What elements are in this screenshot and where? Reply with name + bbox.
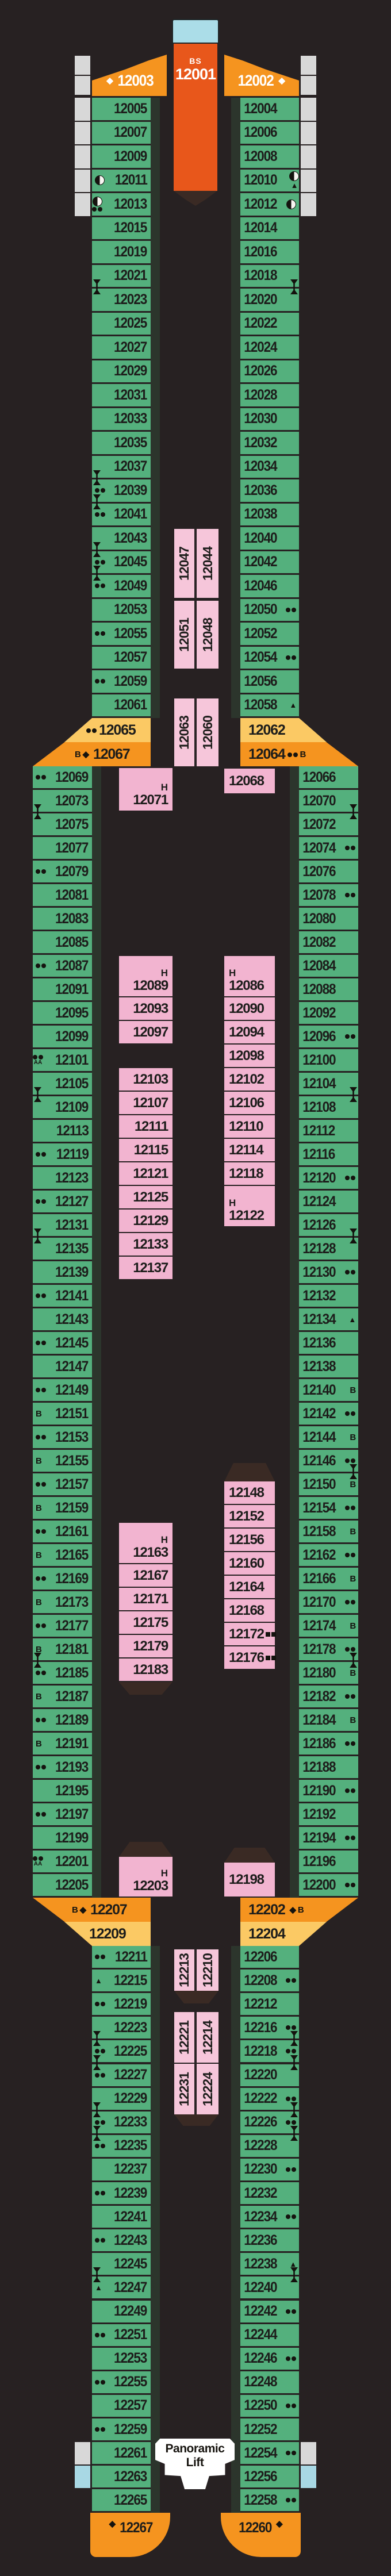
cabin-12124[interactable]: 12124 <box>299 1191 358 1212</box>
cabin-number: 12110 <box>229 1119 263 1135</box>
cabin-12231[interactable]: 12231 <box>174 2064 195 2114</box>
cabin-12144[interactable]: 12144B <box>299 1426 358 1448</box>
cabin-12079[interactable]: 12079 <box>33 861 92 882</box>
cabin-12211[interactable]: 12211 <box>92 1946 151 1968</box>
cabin-12100[interactable]: 12100 <box>299 1049 358 1071</box>
cabin-12081[interactable]: 12081 <box>33 884 92 906</box>
cabin-number: 12181 <box>56 1641 92 1658</box>
cabin-number: 12141 <box>56 1288 92 1304</box>
cabin-12069[interactable]: 12069 <box>33 766 92 788</box>
cabin-number: 12052 <box>240 625 277 642</box>
cabin-12046[interactable]: 12046 <box>240 575 299 597</box>
cabin-12060[interactable]: 12060 <box>197 698 218 766</box>
cabin-12212[interactable]: 12212 <box>240 1993 299 2015</box>
cabin-12145[interactable]: 12145 <box>33 1332 92 1354</box>
cabin-number: 12048 <box>200 618 216 652</box>
cabin-12267[interactable]: ◆12267 <box>90 2513 170 2557</box>
cabin-12248[interactable]: 12248 <box>240 2371 299 2393</box>
cabin-12007[interactable]: 12007 <box>92 122 151 144</box>
cabin-12176[interactable]: 12176 <box>224 1646 275 1669</box>
cabin-12232[interactable]: 12232 <box>240 2182 299 2204</box>
twin-dots-icon <box>286 2167 296 2172</box>
cabin-12152[interactable]: 12152 <box>224 1505 275 1527</box>
cabin-number: 12010 <box>240 172 277 189</box>
cabin-12142[interactable]: 12142 <box>299 1403 358 1425</box>
cabin-12163[interactable]: H12163 <box>119 1523 172 1563</box>
cabin-12082[interactable]: 12082 <box>299 931 358 953</box>
cabin-12001[interactable]: BS12001 <box>174 44 217 191</box>
cabin-number: 12214 <box>200 2021 216 2055</box>
cabin-12224[interactable]: 12224 <box>197 2064 218 2114</box>
cabin-12223[interactable]: 12223 <box>92 2017 151 2038</box>
cabin-12172[interactable]: 12172 <box>224 1623 275 1645</box>
cabin-number: 12220 <box>240 2067 277 2083</box>
cabin-12074[interactable]: 12074 <box>299 837 358 859</box>
cabin-number: 12237 <box>114 2161 151 2178</box>
cabin-12190[interactable]: 12190 <box>299 1780 358 1802</box>
cabin-12048[interactable]: 12048 <box>197 601 218 669</box>
cabin-12241[interactable]: 12241 <box>92 2206 151 2228</box>
diamond-icon: ◆ <box>290 1906 296 1914</box>
cabin-12054[interactable]: 12054 <box>240 647 299 669</box>
cabin-number: 12062 <box>248 722 285 739</box>
cabin-number: 12065 <box>99 722 136 739</box>
cabin-12088[interactable]: 12088 <box>299 978 358 1000</box>
cabin-12160[interactable]: 12160 <box>224 1552 275 1575</box>
cabin-12173[interactable]: B12173 <box>33 1591 92 1613</box>
cabin-number: 12179 <box>133 1638 168 1654</box>
cabin-12093[interactable]: 12093 <box>119 997 172 1020</box>
cabin-12061[interactable]: 12061 <box>92 694 151 717</box>
cabin-12106[interactable]: 12106 <box>224 1092 275 1114</box>
cabin-12197[interactable]: 12197 <box>33 1803 92 1825</box>
cabin-12136[interactable]: 12136 <box>299 1332 358 1354</box>
cabin-number: 12031 <box>114 387 151 404</box>
cabin-12181[interactable]: B12181 <box>33 1638 92 1660</box>
cabin-12025[interactable]: 12025 <box>92 313 151 335</box>
cabin-12159[interactable]: B12159 <box>33 1497 92 1519</box>
cabin-12009[interactable]: 12009 <box>92 145 151 168</box>
cabin-number: 12055 <box>114 625 151 642</box>
cabin-12230[interactable]: 12230 <box>240 2159 299 2180</box>
cabin-12132[interactable]: 12132 <box>299 1285 358 1307</box>
cabin-12225[interactable]: 12225 <box>92 2040 151 2062</box>
panoramic-lift: PanoramicLift <box>155 2439 235 2489</box>
cabin-number: 12038 <box>240 506 277 523</box>
twin-dots-icon <box>95 2191 105 2195</box>
cabin-12235[interactable]: 12235 <box>92 2135 151 2157</box>
cabin-12097[interactable]: 12097 <box>119 1021 172 1043</box>
hull-shape <box>174 191 217 206</box>
cabin-12129[interactable]: 12129 <box>119 1210 172 1232</box>
twin-dots-icon <box>345 1600 355 1604</box>
cabin-12183[interactable]: 12183 <box>119 1659 172 1681</box>
cabin-12080[interactable]: 12080 <box>299 908 358 930</box>
cabin-12114[interactable]: 12114 <box>224 1139 275 1161</box>
cabin-12265[interactable]: 12265 <box>92 2489 151 2511</box>
cabin-12015[interactable]: 12015 <box>92 217 151 240</box>
cabin-12003[interactable]: ◆12003 <box>92 53 167 96</box>
cabin-12123[interactable]: 12123 <box>33 1167 92 1189</box>
cabin-12055[interactable]: 12055 <box>92 623 151 645</box>
cabin-12040[interactable]: 12040 <box>240 527 299 550</box>
cabin-12185[interactable]: 12185 <box>33 1662 92 1684</box>
cabin-12043[interactable]: 12043 <box>92 527 151 550</box>
cabin-12083[interactable]: 12083 <box>33 908 92 930</box>
cabin-12192[interactable]: 12192 <box>299 1803 358 1825</box>
cabin-12184[interactable]: 12184B <box>299 1709 358 1731</box>
cabin-12056[interactable]: 12056 <box>240 670 299 693</box>
cabin-12134[interactable]: 12134▲ <box>299 1308 358 1330</box>
cabin-12107[interactable]: 12107 <box>119 1092 172 1114</box>
cabin-number: 12162 <box>299 1547 335 1564</box>
cabin-12187[interactable]: B12187 <box>33 1686 92 1707</box>
cabin-number: 12150 <box>299 1476 335 1493</box>
twin-dots-icon <box>95 2073 105 2078</box>
cabin-12191[interactable]: B12191 <box>33 1733 92 1755</box>
cabin-12138[interactable]: 12138 <box>299 1356 358 1377</box>
cabin-12036[interactable]: 12036 <box>240 479 299 502</box>
cabin-12158[interactable]: 12158B <box>299 1521 358 1542</box>
cabin-12155[interactable]: B12155 <box>33 1450 92 1472</box>
cabin-12259[interactable]: 12259 <box>92 2418 151 2440</box>
cabin-12053[interactable]: 12053 <box>92 599 151 621</box>
cabin-12057[interactable]: 12057 <box>92 647 151 669</box>
cabin-12140[interactable]: 12140B <box>299 1379 358 1401</box>
cabin-12032[interactable]: 12032 <box>240 432 299 454</box>
twin-dots-icon <box>345 1883 355 1887</box>
cabin-12258[interactable]: 12258 <box>240 2489 299 2511</box>
cabin-12034[interactable]: 12034 <box>240 456 299 478</box>
cabin-12118[interactable]: 12118 <box>224 1162 275 1185</box>
cabin-12156[interactable]: 12156 <box>224 1529 275 1551</box>
cabin-12130[interactable]: 12130 <box>299 1261 358 1283</box>
hull-shadow <box>151 1946 160 2513</box>
balcony-strip <box>301 2442 316 2464</box>
cabin-12198[interactable]: 12198 <box>224 1863 275 1897</box>
cabin-12251[interactable]: 12251 <box>92 2324 151 2346</box>
cabin-12247[interactable]: ▲12247 <box>92 2276 151 2298</box>
cabin-12199[interactable]: 12199 <box>33 1827 92 1849</box>
cabin-12044[interactable]: 12044 <box>197 529 218 598</box>
cabin-12102[interactable]: 12102 <box>224 1068 275 1091</box>
cabin-12013[interactable]: 12013 <box>92 193 151 216</box>
cabin-number: 12251 <box>114 2327 151 2343</box>
cabin-12137[interactable]: 12137 <box>119 1257 172 1279</box>
cabin-number: 12166 <box>299 1571 335 1587</box>
cabin-12005[interactable]: 12005 <box>92 98 151 120</box>
divider-icon <box>350 1087 357 1102</box>
cabin-12189[interactable]: 12189 <box>33 1709 92 1731</box>
cabin-12073[interactable]: 12073 <box>33 790 92 812</box>
cabin-12120[interactable]: 12120 <box>299 1167 358 1189</box>
cabin-12260[interactable]: 12260◆ <box>221 2513 301 2557</box>
cabin-12121[interactable]: 12121 <box>119 1162 172 1185</box>
cabin-12227[interactable]: 12227 <box>92 2064 151 2086</box>
cabin-12157[interactable]: 12157 <box>33 1473 92 1495</box>
cabin-12115[interactable]: 12115 <box>119 1139 172 1161</box>
cabin-12033[interactable]: 12033 <box>92 408 151 431</box>
cabin-code: BS <box>189 56 201 66</box>
cabin-12085[interactable]: 12085 <box>33 931 92 953</box>
cabin-12028[interactable]: 12028 <box>240 384 299 406</box>
cabin-12090[interactable]: 12090 <box>224 997 275 1020</box>
cabin-number: 12185 <box>56 1665 92 1681</box>
cabin-12038[interactable]: 12038 <box>240 504 299 526</box>
letters-aa-icon: AA <box>34 1861 42 1867</box>
cabin-12249[interactable]: 12249 <box>92 2301 151 2322</box>
cabin-12239[interactable]: 12239 <box>92 2182 151 2204</box>
cabin-12237[interactable]: 12237 <box>92 2159 151 2180</box>
cabin-12091[interactable]: 12091 <box>33 978 92 1000</box>
cabin-12151[interactable]: B12151 <box>33 1403 92 1425</box>
divider-icon <box>290 2055 298 2070</box>
cabin-12244[interactable]: 12244 <box>240 2324 299 2346</box>
cabin-12049[interactable]: 12049 <box>92 575 151 597</box>
cabin-12027[interactable]: 12027 <box>92 336 151 359</box>
cabin-12233[interactable]: 12233 <box>92 2112 151 2133</box>
cabin-12243[interactable]: 12243 <box>92 2229 151 2251</box>
cabin-12261[interactable]: 12261 <box>92 2442 151 2464</box>
cabin-12179[interactable]: 12179 <box>119 1635 172 1657</box>
cabin-12041[interactable]: 12041 <box>92 504 151 526</box>
cabin-12002[interactable]: 12002◆ <box>224 53 299 96</box>
cabin-12011[interactable]: 12011 <box>92 170 151 192</box>
twin-dots-icon <box>36 1152 46 1157</box>
cabin-12200[interactable]: 12200 <box>299 1874 358 1896</box>
cabin-12133[interactable]: 12133 <box>119 1233 172 1256</box>
cabin-12096[interactable]: 12096 <box>299 1026 358 1047</box>
cabin-12213[interactable]: 12213 <box>174 1949 195 1991</box>
cabin-12141[interactable]: 12141 <box>33 1285 92 1307</box>
cabin-12051[interactable]: 12051 <box>174 601 195 669</box>
cabin-12078[interactable]: 12078 <box>299 884 358 906</box>
cabin-12031[interactable]: 12031 <box>92 384 151 406</box>
twin-dots-icon <box>345 1647 355 1652</box>
cabin-number: 12082 <box>299 934 335 951</box>
twin-squares-icon <box>266 1632 276 1637</box>
cabin-12263[interactable]: 12263 <box>92 2466 151 2487</box>
cabin-number: 12192 <box>299 1806 335 1823</box>
cabin-12256[interactable]: 12256 <box>240 2466 299 2487</box>
cabin-12042[interactable]: 12042 <box>240 551 299 574</box>
cabin-12008[interactable]: 12008 <box>240 145 299 168</box>
cabin-12254[interactable]: 12254 <box>240 2442 299 2464</box>
cabin-12252[interactable]: 12252 <box>240 2418 299 2440</box>
cabin-12022[interactable]: 12022 <box>240 313 299 335</box>
cabin-12012[interactable]: 12012 <box>240 193 299 216</box>
cabin-12119[interactable]: 12119 <box>33 1143 92 1165</box>
cabin-12112[interactable]: 12112 <box>299 1120 358 1142</box>
cabin-12084[interactable]: 12084 <box>299 955 358 977</box>
cabin-number: 12186 <box>299 1736 335 1752</box>
cabin-number: 12249 <box>114 2303 151 2320</box>
divider-icon <box>350 1653 357 1668</box>
cabin-12066[interactable]: 12066 <box>299 766 358 788</box>
cabin-12098[interactable]: 12098 <box>224 1045 275 1067</box>
cabin-12177[interactable]: 12177 <box>33 1615 92 1637</box>
cabin-number: 12069 <box>56 769 92 786</box>
cabin-number: 12022 <box>240 315 277 332</box>
cabin-12174[interactable]: 12174B <box>299 1615 358 1637</box>
cabin-12089[interactable]: H12089 <box>119 956 172 996</box>
cabin-12246[interactable]: 12246 <box>240 2348 299 2370</box>
cabin-12205[interactable]: 12205 <box>33 1874 92 1896</box>
cabin-12165[interactable]: B12165 <box>33 1544 92 1566</box>
cabin-12166[interactable]: 12166B <box>299 1568 358 1590</box>
cabin-number: 12072 <box>299 816 335 833</box>
cabin-12149[interactable]: 12149 <box>33 1379 92 1401</box>
cabin-12135[interactable]: 12135 <box>33 1238 92 1260</box>
cabin-12063[interactable]: 12063 <box>174 698 195 766</box>
cabin-12214[interactable]: 12214 <box>197 2012 218 2063</box>
cabin-12139[interactable]: 12139 <box>33 1261 92 1283</box>
cabin-12068[interactable]: 12068 <box>224 769 275 793</box>
cabin-number: 12097 <box>133 1024 168 1041</box>
cabin-12164[interactable]: 12164 <box>224 1576 275 1598</box>
cabin-number: 12236 <box>240 2232 277 2249</box>
cabin-12131[interactable]: 12131 <box>33 1214 92 1236</box>
cabin-12026[interactable]: 12026 <box>240 360 299 383</box>
cabin-12006[interactable]: 12006 <box>240 122 299 144</box>
cabin-12250[interactable]: 12250 <box>240 2395 299 2417</box>
balcony-strip-blue <box>75 2466 90 2488</box>
twin-dots-icon <box>286 608 296 612</box>
cabin-12229[interactable]: 12229 <box>92 2088 151 2110</box>
cabin-12242[interactable]: 12242 <box>240 2301 299 2322</box>
cabin-12019[interactable]: 12019 <box>92 241 151 263</box>
cabin-number: 12131 <box>56 1217 92 1234</box>
cabin-12103[interactable]: 12103 <box>119 1068 172 1091</box>
cabin-12101[interactable]: AA12101 <box>33 1049 92 1071</box>
letter-b-icon: B <box>75 750 80 759</box>
cabin-number: 12171 <box>133 1591 168 1607</box>
cabin-12125[interactable]: 12125 <box>119 1186 172 1208</box>
cabin-12052[interactable]: 12052 <box>240 623 299 645</box>
cabin-12071[interactable]: H12071 <box>119 768 172 811</box>
cabin-12045[interactable]: 12045 <box>92 551 151 574</box>
cabin-12153[interactable]: 12153 <box>33 1426 92 1448</box>
cabin-12037[interactable]: 12037 <box>92 456 151 478</box>
letter-b-icon: B <box>36 1457 41 1465</box>
cabin-12196[interactable]: 12196 <box>299 1851 358 1872</box>
cabin-12161[interactable]: 12161 <box>33 1521 92 1542</box>
cabin-12077[interactable]: 12077 <box>33 837 92 859</box>
cabin-12024[interactable]: 12024 <box>240 336 299 359</box>
cabin-12234[interactable]: 12234 <box>240 2206 299 2228</box>
cabin-12170[interactable]: 12170 <box>299 1591 358 1613</box>
cabin-12236[interactable]: 12236 <box>240 2229 299 2251</box>
cabin-12210[interactable]: 12210 <box>197 1949 218 1991</box>
cabin-12059[interactable]: 12059 <box>92 670 151 693</box>
cabin-12215[interactable]: ▲12215 <box>92 1970 151 1991</box>
cabin-12175[interactable]: 12175 <box>119 1611 172 1634</box>
cabin-12116[interactable]: 12116 <box>299 1143 358 1165</box>
cabin-12058[interactable]: 12058▲ <box>240 694 299 717</box>
cabin-12094[interactable]: 12094 <box>224 1021 275 1043</box>
hull-shadow <box>231 98 240 718</box>
cabin-number: 12164 <box>229 1579 264 1595</box>
cabin-12253[interactable]: 12253 <box>92 2348 151 2370</box>
cabin-12193[interactable]: 12193 <box>33 1756 92 1778</box>
cabin-12099[interactable]: 12099 <box>33 1026 92 1047</box>
cabin-12219[interactable]: 12219 <box>92 1993 151 2015</box>
cabin-12035[interactable]: 12035 <box>92 432 151 454</box>
cabin-12257[interactable]: 12257 <box>92 2395 151 2417</box>
cabin-12169[interactable]: 12169 <box>33 1568 92 1590</box>
cabin-number: 12216 <box>240 2020 277 2036</box>
divider-icon <box>290 2267 298 2282</box>
cabin-12143[interactable]: 12143 <box>33 1308 92 1330</box>
hull-shadow <box>231 1946 240 2513</box>
cabin-12221[interactable]: 12221 <box>174 2012 195 2063</box>
cabin-12167[interactable]: 12167 <box>119 1564 172 1587</box>
cabin-12086[interactable]: H12086 <box>224 956 275 996</box>
cabin-12023[interactable]: 12023 <box>92 289 151 311</box>
cabin-12111[interactable]: 12111 <box>119 1115 172 1138</box>
cabin-12105[interactable]: 12105 <box>33 1073 92 1095</box>
cabin-12075[interactable]: 12075 <box>33 813 92 835</box>
cabin-12021[interactable]: 12021 <box>92 265 151 287</box>
cabin-number: 12158 <box>299 1523 335 1540</box>
cabin-12092[interactable]: 12092 <box>299 1002 358 1024</box>
cabin-12188[interactable]: 12188 <box>299 1756 358 1778</box>
cabin-12245[interactable]: 12245 <box>92 2253 151 2275</box>
cabin-12110[interactable]: 12110 <box>224 1115 275 1138</box>
cabin-12010[interactable]: 12010▲ <box>240 170 299 192</box>
cabin-12154[interactable]: 12154 <box>299 1497 358 1519</box>
cabin-12047[interactable]: 12047 <box>174 529 195 598</box>
cabin-12168[interactable]: 12168 <box>224 1599 275 1622</box>
cabin-12171[interactable]: 12171 <box>119 1588 172 1610</box>
twin-dots-icon <box>286 2049 296 2053</box>
cabin-12255[interactable]: 12255 <box>92 2371 151 2393</box>
cabin-12050[interactable]: 12050 <box>240 599 299 621</box>
cabin-12194[interactable]: 12194 <box>299 1827 358 1849</box>
cabin-12195[interactable]: 12195 <box>33 1780 92 1802</box>
cabin-12147[interactable]: 12147 <box>33 1356 92 1377</box>
cabin-number: 12074 <box>299 840 335 857</box>
cabin-12004[interactable]: 12004 <box>240 98 299 120</box>
diamond-icon: ◆ <box>83 750 89 759</box>
cabin-number: 12002 <box>238 72 274 90</box>
cabin-12186[interactable]: 12186 <box>299 1733 358 1755</box>
cabin-12208[interactable]: 12208 <box>240 1970 299 1991</box>
cabin-12148[interactable]: 12148 <box>224 1481 275 1504</box>
cabin-12076[interactable]: 12076 <box>299 861 358 882</box>
cabin-12030[interactable]: 12030 <box>240 408 299 431</box>
cabin-number: 12198 <box>229 1872 264 1888</box>
cabin-12122[interactable]: H12122 <box>224 1186 275 1226</box>
cabin-12016[interactable]: 12016 <box>240 241 299 263</box>
cabin-12014[interactable]: 12014 <box>240 217 299 240</box>
cabin-12182[interactable]: 12182 <box>299 1686 358 1707</box>
cabin-12039[interactable]: 12039 <box>92 479 151 502</box>
cabin-12087[interactable]: 12087 <box>33 955 92 977</box>
cabin-12113[interactable]: 12113 <box>33 1120 92 1142</box>
cabin-12095[interactable]: 12095 <box>33 1002 92 1024</box>
cabin-12203[interactable]: H12203 <box>119 1857 172 1897</box>
cabin-number: 12089 <box>133 978 168 994</box>
cabin-12201[interactable]: AA12201 <box>33 1851 92 1872</box>
cabin-12127[interactable]: 12127 <box>33 1191 92 1212</box>
cabin-12029[interactable]: 12029 <box>92 360 151 383</box>
balcony-strip <box>301 193 316 216</box>
twin-dots-icon <box>95 2002 105 2006</box>
cabin-12109[interactable]: 12109 <box>33 1096 92 1118</box>
cabin-12162[interactable]: 12162 <box>299 1544 358 1566</box>
cabin-12206[interactable]: 12206 <box>240 1946 299 1968</box>
